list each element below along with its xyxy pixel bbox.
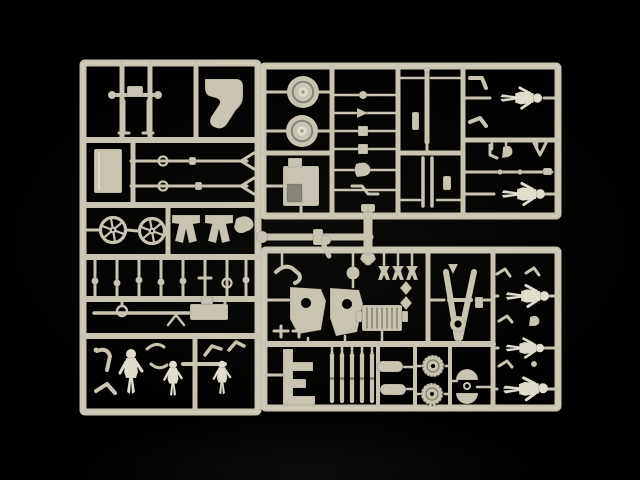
small-knob <box>180 278 187 285</box>
soldier-figure <box>503 377 549 401</box>
v-part <box>534 143 546 155</box>
elbow-pipe-part <box>205 346 221 355</box>
shell-part <box>349 349 355 401</box>
shield-hole <box>342 299 352 309</box>
disc-part <box>347 267 360 280</box>
soldier-figure <box>502 183 545 204</box>
seat-part <box>205 79 243 128</box>
bottom-right-sprue <box>264 250 558 408</box>
small-knob <box>531 361 537 367</box>
trail-hook <box>448 264 458 274</box>
roadwheel-hub-hole <box>301 90 304 93</box>
mount-box-notch <box>288 158 302 167</box>
rifle-stock <box>543 168 552 175</box>
road-wheel <box>287 76 319 108</box>
e-bracket-part <box>283 349 315 405</box>
elbow-pipe-part <box>470 78 486 88</box>
mg-bipod <box>168 315 176 325</box>
boot-part <box>502 146 513 158</box>
gear-wheel <box>421 383 443 405</box>
recoil-bell <box>360 254 376 265</box>
half-disc-part <box>456 369 478 380</box>
elbow-pipe-part <box>96 384 115 393</box>
soldier-figure <box>506 285 549 306</box>
gun-mount-box <box>127 86 143 97</box>
small-block-part <box>358 126 368 136</box>
clamp-part <box>378 266 390 280</box>
elbow-pipe-part <box>470 118 486 126</box>
small-knob <box>114 280 121 287</box>
curved-part <box>151 364 167 368</box>
shell-part <box>329 349 335 401</box>
cradle-bracket <box>172 215 200 243</box>
clamp-part <box>406 266 418 280</box>
small-knob <box>359 91 367 99</box>
hook-part <box>276 267 300 283</box>
cradle-bracket <box>205 215 233 243</box>
clamp-part <box>392 266 404 280</box>
shell-part <box>359 349 365 401</box>
figure-head <box>218 361 226 369</box>
arm-hand <box>94 348 99 353</box>
rifle-collar <box>497 169 502 174</box>
cylinder-part <box>380 384 406 395</box>
mg-bipod <box>176 315 184 325</box>
mg-magazine <box>201 297 213 304</box>
figure-head <box>533 93 542 102</box>
standing-figure <box>120 349 142 394</box>
wheel-spoke <box>104 232 111 237</box>
figure-head <box>539 291 549 301</box>
roadwheel-hub-hole <box>300 129 303 132</box>
figure-head <box>535 189 545 199</box>
mount-box-opening <box>287 184 302 202</box>
trail-tab <box>475 297 483 308</box>
gun-mount-wingnut <box>108 91 116 99</box>
small-knob <box>158 279 165 286</box>
wheel-hub-hole <box>112 229 114 231</box>
shield-hole <box>301 298 311 308</box>
small-ring-part <box>464 383 470 389</box>
wheel-spoke <box>114 233 115 241</box>
shield-plate <box>290 287 326 334</box>
muzzle-brake <box>256 231 268 243</box>
arm-part <box>97 350 110 370</box>
gun-mount-wingnut <box>154 91 162 99</box>
small-block-part <box>358 144 368 154</box>
wheel-spoke <box>155 232 163 235</box>
figure-head <box>536 344 545 353</box>
elbow-pipe-part <box>499 361 512 367</box>
model-kit-sprues-photo <box>0 0 640 480</box>
wheel-spoke <box>150 220 151 228</box>
half-disc-part <box>456 393 478 404</box>
elbow-pipe-part <box>499 316 512 322</box>
gear-wheel <box>422 355 444 377</box>
elbow-pipe-part <box>229 342 244 350</box>
horn-part <box>355 163 371 177</box>
wheel-spoke <box>141 227 149 230</box>
wheel-hub-hole <box>151 230 153 232</box>
wheel-spoke <box>154 224 161 229</box>
hook-part <box>234 216 254 233</box>
wheel-spoke <box>102 226 110 229</box>
sprue-photo-svg <box>0 0 640 480</box>
top-right-sprue <box>263 66 558 216</box>
boot-part <box>529 316 540 326</box>
elbow-pipe-part <box>526 268 539 275</box>
small-cone-part <box>357 108 368 118</box>
hanging-cylinder <box>323 243 329 256</box>
curved-part <box>147 344 164 349</box>
elbow-pipe-part <box>497 269 510 276</box>
mg-body <box>190 304 228 320</box>
shell-band <box>349 377 355 380</box>
gear-hole <box>430 392 434 396</box>
soldier-figure <box>500 88 542 108</box>
small-l-part <box>490 145 497 158</box>
figure-head <box>126 349 136 359</box>
small-knob <box>92 278 99 285</box>
small-lever-part <box>443 176 451 190</box>
wheel-spoke <box>116 231 124 234</box>
shell-part <box>369 349 375 401</box>
ribbed-block-tab <box>402 311 408 322</box>
soldier-figure <box>506 339 545 358</box>
shell-band <box>369 377 375 380</box>
recoil-cap <box>361 204 375 212</box>
tool-rod-collar <box>189 157 196 165</box>
shell-band <box>359 377 365 380</box>
diamond-part <box>400 281 412 295</box>
rifle-collar <box>517 169 522 174</box>
spoked-wheel <box>101 218 126 243</box>
trail-hub-hole <box>455 321 462 328</box>
left-sprue <box>83 63 258 412</box>
left-sprue-runner <box>127 230 138 231</box>
road-wheel <box>286 115 318 147</box>
cylinder-part <box>377 361 403 372</box>
ribbed-block-tab <box>356 311 362 322</box>
side-lever-part <box>412 112 419 130</box>
shell-band <box>339 377 345 380</box>
figure-head <box>169 361 177 369</box>
ribbed-block-ribs <box>367 308 397 328</box>
small-knob <box>136 277 143 284</box>
spoked-wheel <box>140 219 165 244</box>
small-knob <box>243 277 250 284</box>
wheel-spoke <box>143 233 150 238</box>
shell-part <box>339 349 345 401</box>
gear-hole <box>431 364 435 368</box>
wheel-spoke <box>111 219 112 227</box>
wheel-spoke <box>153 234 154 242</box>
shell-band <box>329 377 335 380</box>
barrel-rod-tip <box>424 67 430 73</box>
wheel-spoke <box>115 223 122 228</box>
tool-rod-collar <box>195 182 202 190</box>
